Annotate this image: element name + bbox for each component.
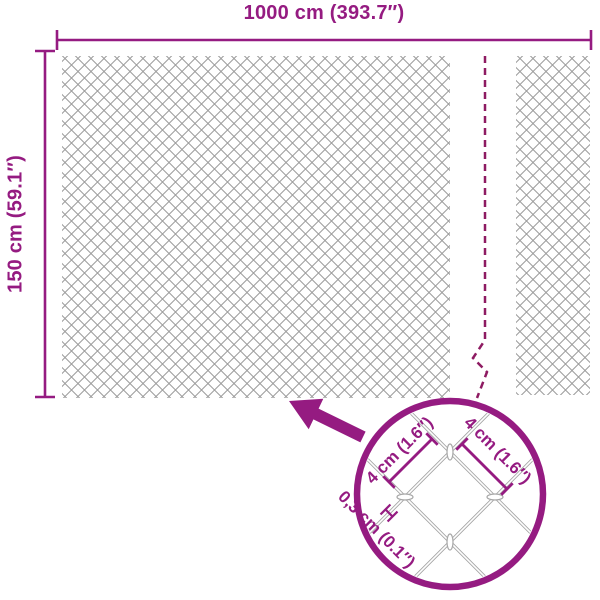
fence-mesh-main <box>62 56 450 398</box>
magnified-mesh <box>122 385 600 600</box>
diagram-canvas: 4 cm (1.6″) 4 cm (1.6″) 0,3 cm (0.1″) <box>0 0 600 600</box>
mesh-size-right-label: 4 cm (1.6″) <box>460 413 535 488</box>
width-dimension-line <box>57 30 591 50</box>
magnifier-detail-circle-icon <box>357 401 543 587</box>
product-dimension-diagram: 1000 cm (393.7″) 150 cm (59.1″) <box>0 0 600 600</box>
break-line <box>473 56 487 398</box>
fence-mesh-strip <box>516 56 590 395</box>
mesh-detail-view: 4 cm (1.6″) 4 cm (1.6″) 0,3 cm (0.1″) <box>122 385 600 600</box>
height-dimension-line <box>35 51 55 397</box>
zoom-pointer-arrow-icon <box>289 399 366 443</box>
